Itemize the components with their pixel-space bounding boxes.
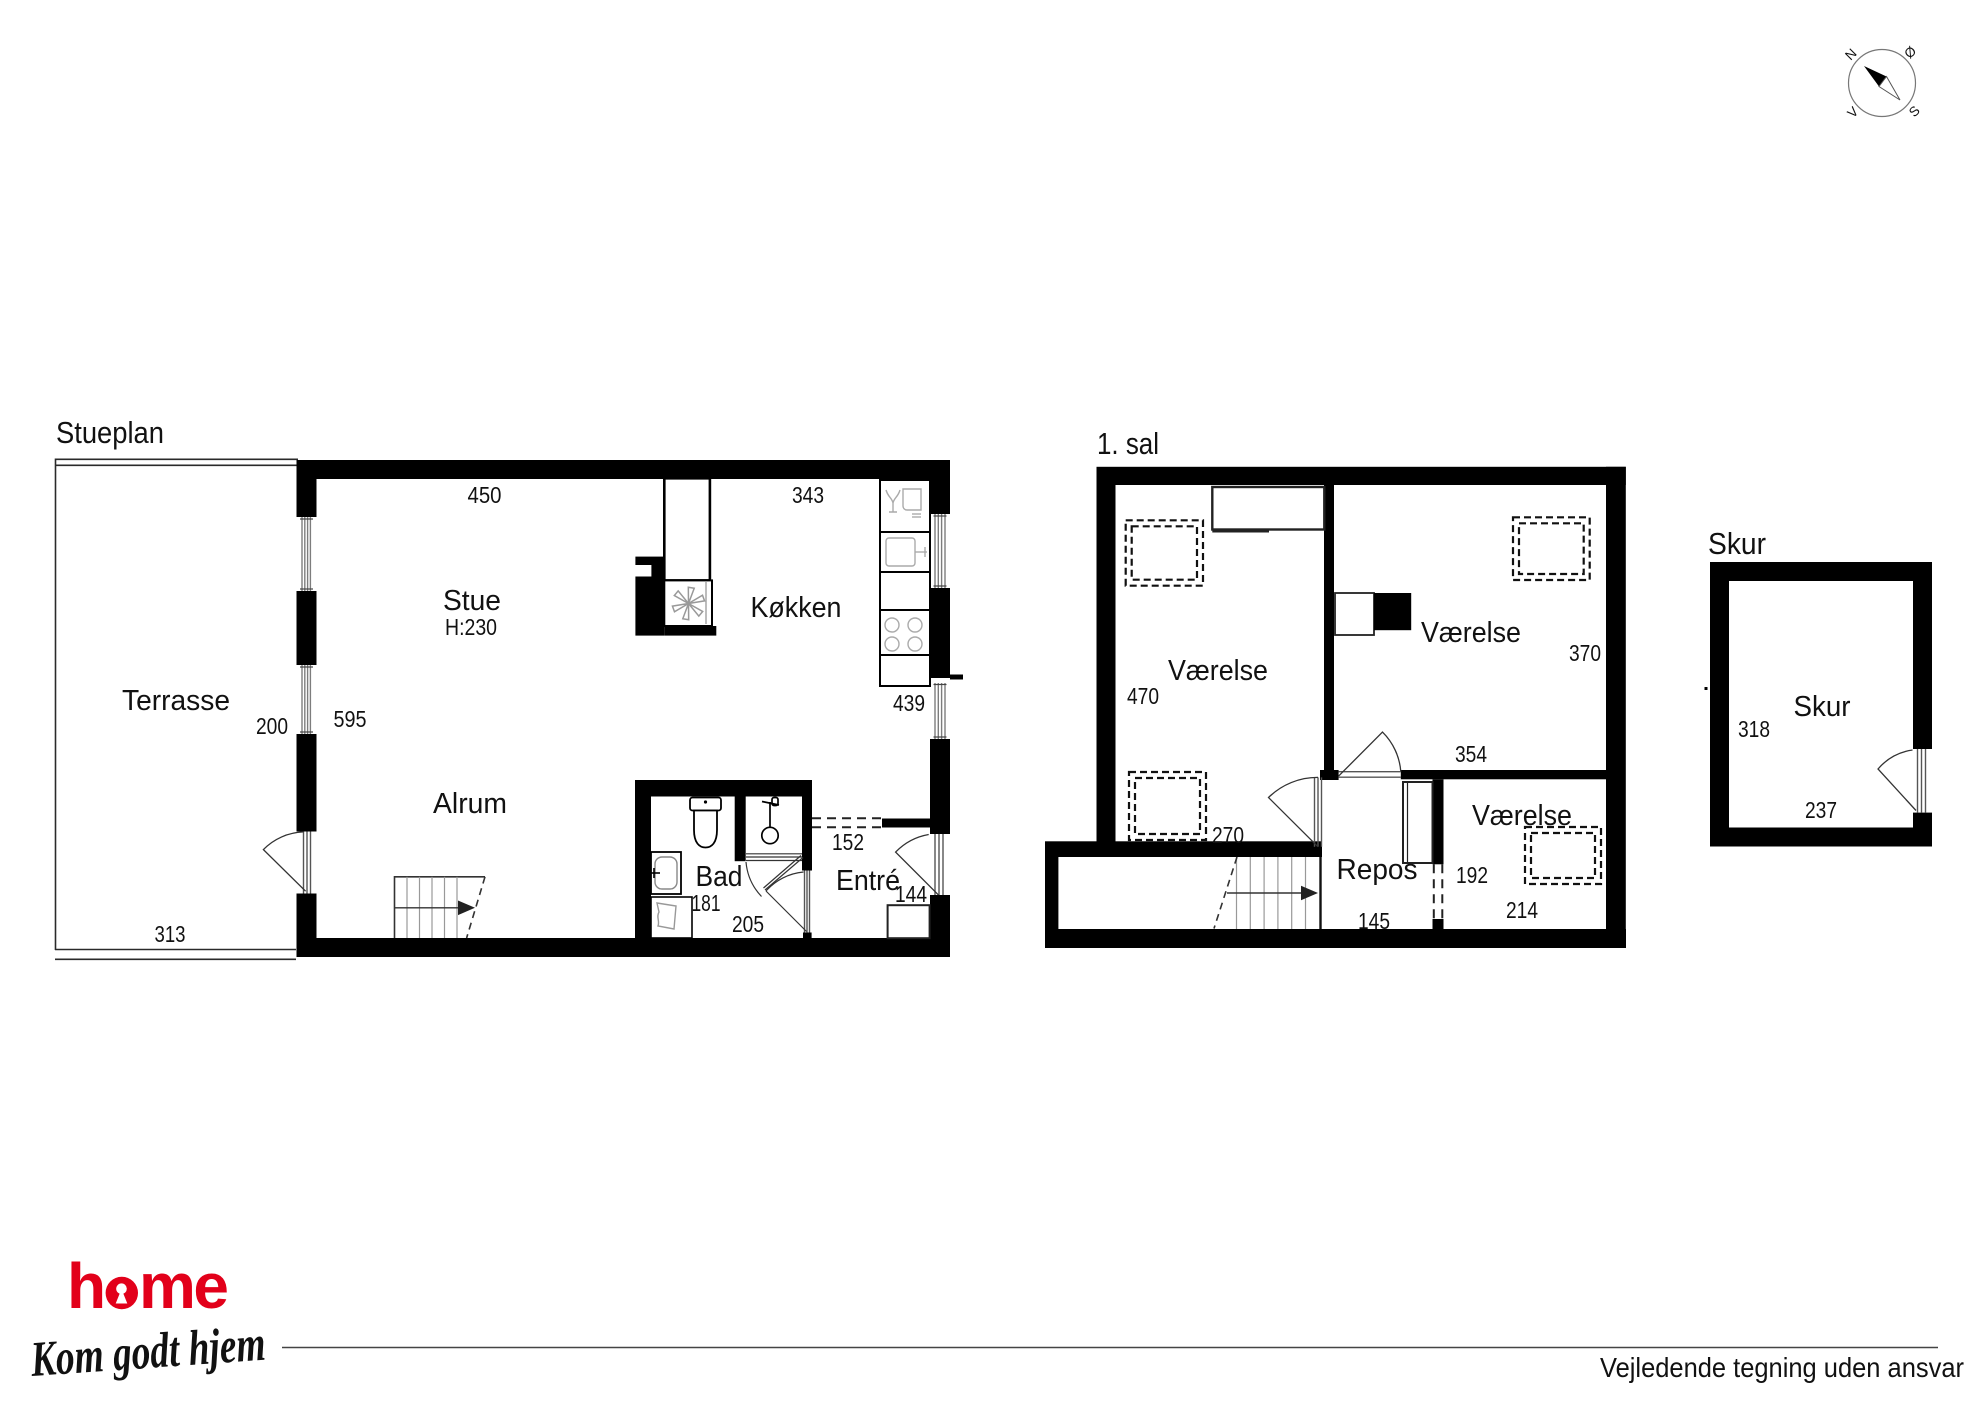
svg-text:Entré: Entré bbox=[836, 865, 900, 897]
svg-text:h: h bbox=[67, 1250, 104, 1322]
svg-text:370: 370 bbox=[1569, 640, 1601, 666]
svg-text:200: 200 bbox=[256, 713, 288, 739]
svg-text:439: 439 bbox=[893, 690, 925, 716]
svg-text:Stue: Stue bbox=[443, 585, 501, 617]
svg-text:318: 318 bbox=[1738, 716, 1770, 742]
svg-text:354: 354 bbox=[1455, 741, 1487, 767]
svg-text:181: 181 bbox=[692, 890, 721, 916]
svg-text:313: 313 bbox=[155, 921, 186, 947]
svg-text:Stueplan: Stueplan bbox=[56, 416, 164, 450]
svg-text:Vejledende tegning uden ansvar: Vejledende tegning uden ansvar bbox=[1600, 1352, 1964, 1383]
svg-text:Værelse: Værelse bbox=[1168, 655, 1268, 687]
svg-text:Værelse: Værelse bbox=[1472, 800, 1572, 832]
svg-text:144: 144 bbox=[895, 881, 927, 907]
svg-text:Køkken: Køkken bbox=[751, 592, 842, 624]
svg-text:1. sal: 1. sal bbox=[1097, 427, 1159, 461]
svg-text:145: 145 bbox=[1358, 908, 1390, 934]
svg-text:192: 192 bbox=[1456, 862, 1488, 888]
svg-text:152: 152 bbox=[832, 829, 864, 855]
svg-text:270: 270 bbox=[1212, 822, 1244, 848]
svg-text:214: 214 bbox=[1506, 897, 1538, 923]
svg-text:me: me bbox=[139, 1250, 227, 1322]
svg-text:Værelse: Værelse bbox=[1421, 617, 1521, 649]
svg-text:Alrum: Alrum bbox=[433, 788, 507, 820]
svg-text:Bad: Bad bbox=[696, 861, 743, 893]
svg-text:450: 450 bbox=[468, 482, 502, 508]
svg-text:237: 237 bbox=[1805, 797, 1837, 823]
svg-text:205: 205 bbox=[732, 911, 764, 937]
svg-text:Skur: Skur bbox=[1708, 527, 1766, 561]
svg-text:H:230: H:230 bbox=[445, 614, 497, 640]
svg-text:343: 343 bbox=[792, 482, 824, 508]
svg-text:470: 470 bbox=[1127, 683, 1159, 709]
svg-text:Repos: Repos bbox=[1337, 854, 1418, 886]
svg-text:595: 595 bbox=[334, 706, 367, 732]
svg-text:Terrasse: Terrasse bbox=[122, 685, 230, 717]
svg-text:Skur: Skur bbox=[1794, 691, 1851, 723]
